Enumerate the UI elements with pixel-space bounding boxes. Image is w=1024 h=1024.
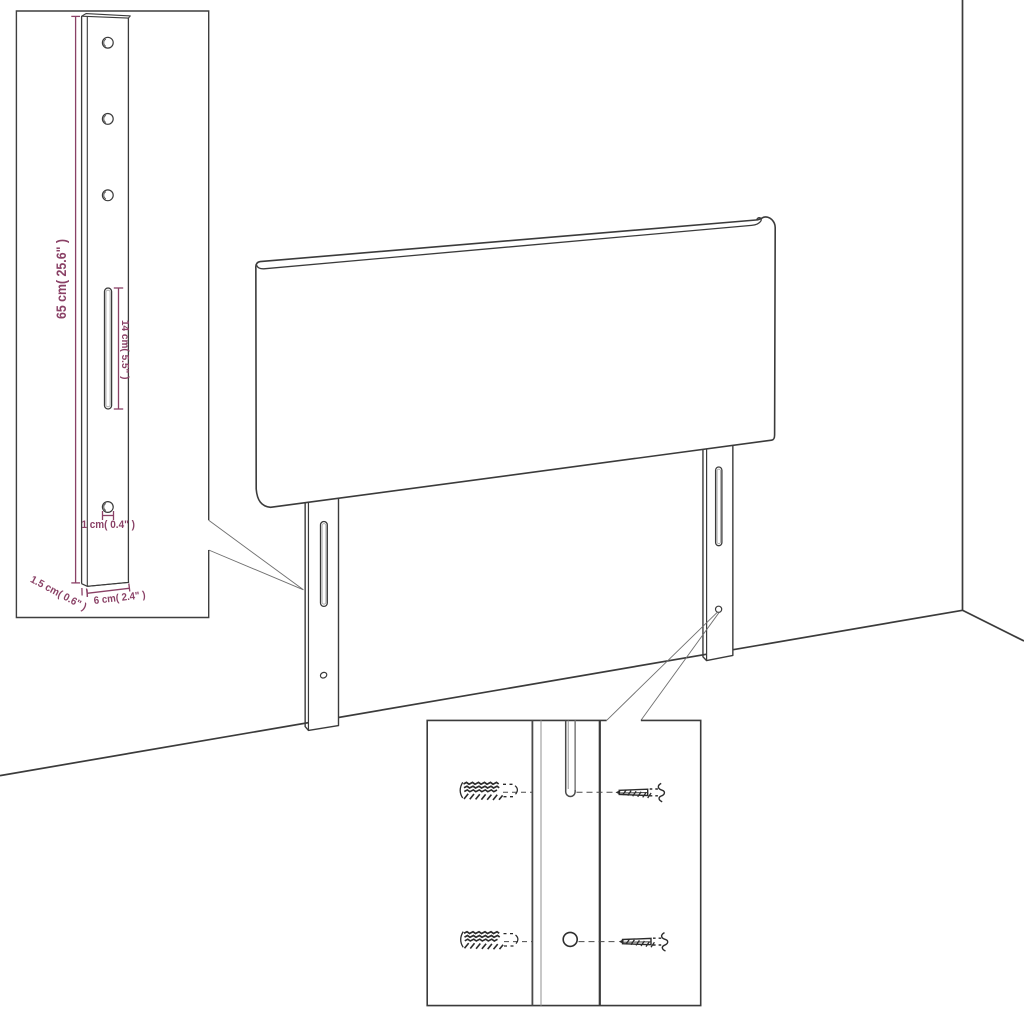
svg-text:1 cm( 0.4" ): 1 cm( 0.4" ) [81,519,135,531]
svg-text:65 cm( 25.6" ): 65 cm( 25.6" ) [54,239,69,319]
svg-text:14 cm( 5.5" ): 14 cm( 5.5" ) [119,320,131,380]
